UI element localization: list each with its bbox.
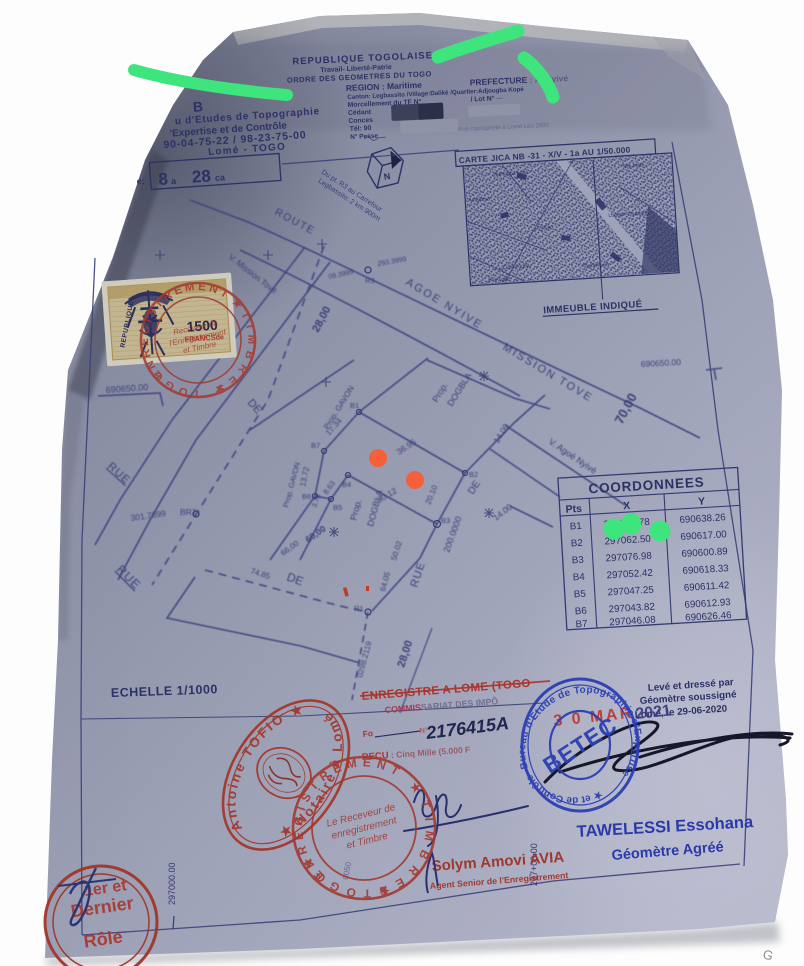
svg-text:/ Lot N° —: / Lot N° — — [470, 94, 503, 103]
svg-text:B: B — [192, 98, 203, 115]
svg-text:Pts: Pts — [565, 503, 582, 516]
svg-text:B7: B7 — [575, 619, 588, 631]
svg-text:R1: R1 — [354, 604, 364, 613]
svg-text:Fo: Fo — [362, 728, 373, 739]
svg-text:X: X — [623, 500, 631, 512]
svg-text:B3: B3 — [572, 555, 585, 567]
svg-text:690650.00: 690650.00 — [641, 357, 682, 369]
svg-text:B7: B7 — [311, 441, 320, 450]
svg-text:B4: B4 — [342, 480, 351, 489]
svg-text:B2: B2 — [570, 538, 583, 550]
svg-text:Tél: 90: Tél: 90 — [350, 125, 372, 133]
svg-text:297000.00: 297000.00 — [167, 862, 177, 905]
svg-text:B6: B6 — [575, 606, 588, 618]
svg-text:B4: B4 — [573, 572, 586, 584]
svg-text:Dadiko: Dadiko — [537, 224, 554, 231]
svg-text:Y: Y — [698, 495, 706, 507]
svg-text:B5: B5 — [574, 589, 587, 601]
svg-text:B1: B1 — [569, 521, 582, 533]
svg-text:B2: B2 — [469, 470, 478, 479]
svg-text:Conces: Conces — [348, 117, 373, 125]
svg-text:B5: B5 — [333, 503, 342, 512]
svg-text:BR2: BR2 — [180, 507, 197, 517]
svg-text:Cédant: Cédant — [348, 109, 372, 117]
svg-text:e:: e: — [136, 176, 145, 187]
svg-text:R3: R3 — [365, 276, 375, 285]
svg-text:B1: B1 — [350, 401, 359, 410]
svg-text:N° Pesse: N° Pesse — [350, 132, 379, 141]
svg-text:B6: B6 — [302, 492, 311, 501]
svg-text:B3: B3 — [441, 516, 450, 525]
